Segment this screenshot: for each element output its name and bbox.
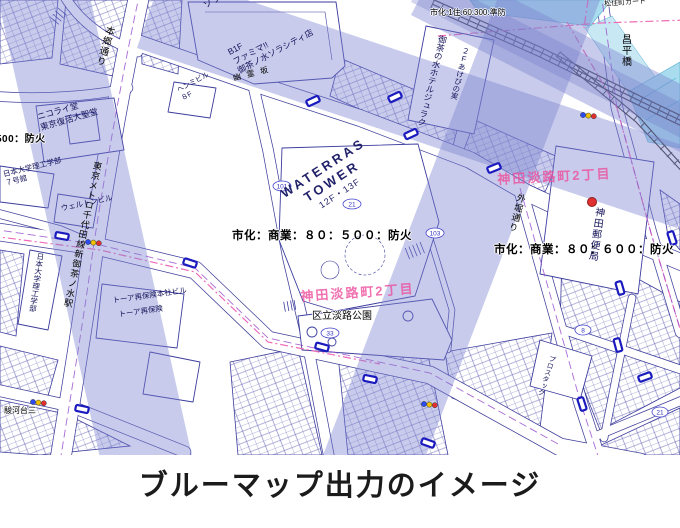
parcel-number: 33: [326, 331, 334, 338]
bluemap-image: 101 21 103 33 8 21 市化:1住:60:300:準防 500：防…: [0, 0, 680, 455]
shohei-bashi-label: 昌平橋: [618, 34, 631, 67]
zoning-label-top: 市化:1住:60:300:準防: [430, 8, 506, 18]
zoning-label-left-partial: 500：防火: [0, 134, 46, 147]
parcel-number: 21: [348, 202, 356, 209]
surugadai-label: 駿河台三: [4, 406, 36, 416]
parcel-number: 8: [581, 328, 585, 335]
zoning-label-center: 市化：商業：８０：５００：防火: [232, 229, 412, 243]
awaji-park-label: 区立淡路公園: [312, 311, 372, 324]
map-graphics: 101 21 103 33 8 21: [0, 0, 680, 455]
parcel-number: 21: [656, 410, 664, 417]
image-caption: ブルーマップ出力のイメージ: [0, 462, 680, 504]
bluemap-screenshot: 101 21 103 33 8 21 市化:1住:60:300:準防 500：防…: [0, 0, 680, 528]
parcel-number: 103: [430, 231, 441, 238]
